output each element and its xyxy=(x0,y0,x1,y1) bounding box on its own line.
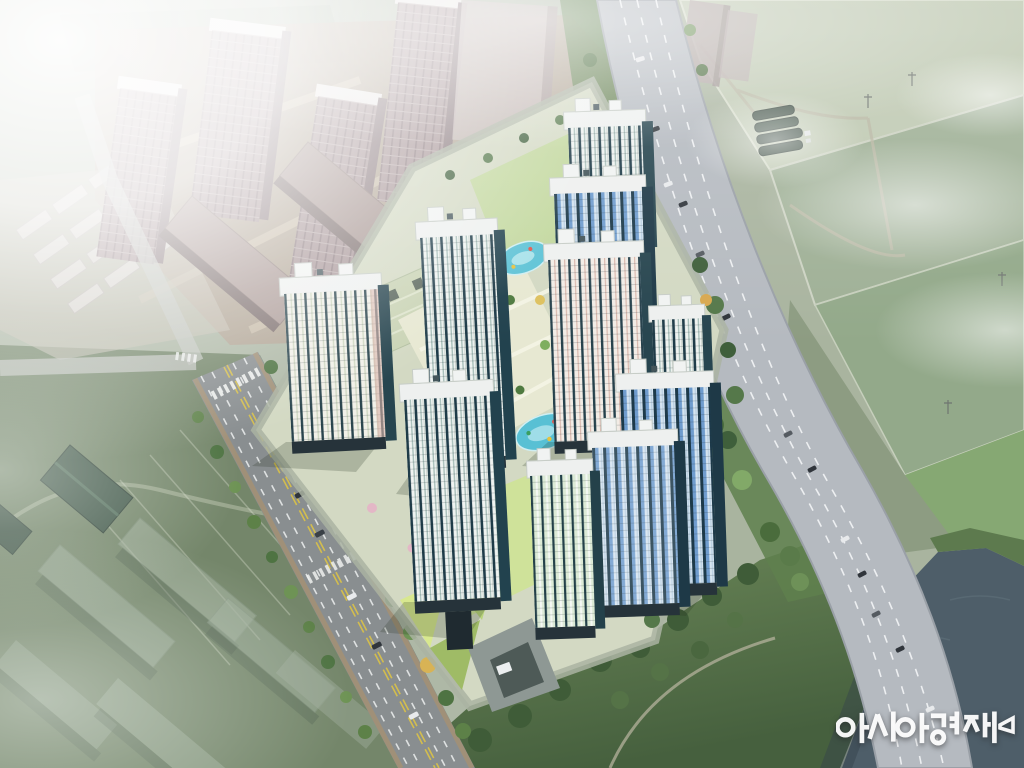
asiae-logo-icon xyxy=(836,706,1024,754)
glyph-gyeong xyxy=(931,711,957,743)
glyph-a1 xyxy=(837,713,869,743)
glyph-je xyxy=(964,711,994,743)
glyph-si xyxy=(870,711,894,741)
rendering-canvas: 아시아경제 xyxy=(0,0,1024,768)
watermark: 아시아경제 xyxy=(836,706,1024,754)
glyph-a2 xyxy=(897,713,929,743)
fog-overlays xyxy=(0,0,1024,768)
aerial-rendering xyxy=(0,0,1024,768)
speech-mark-icon xyxy=(1000,718,1013,732)
